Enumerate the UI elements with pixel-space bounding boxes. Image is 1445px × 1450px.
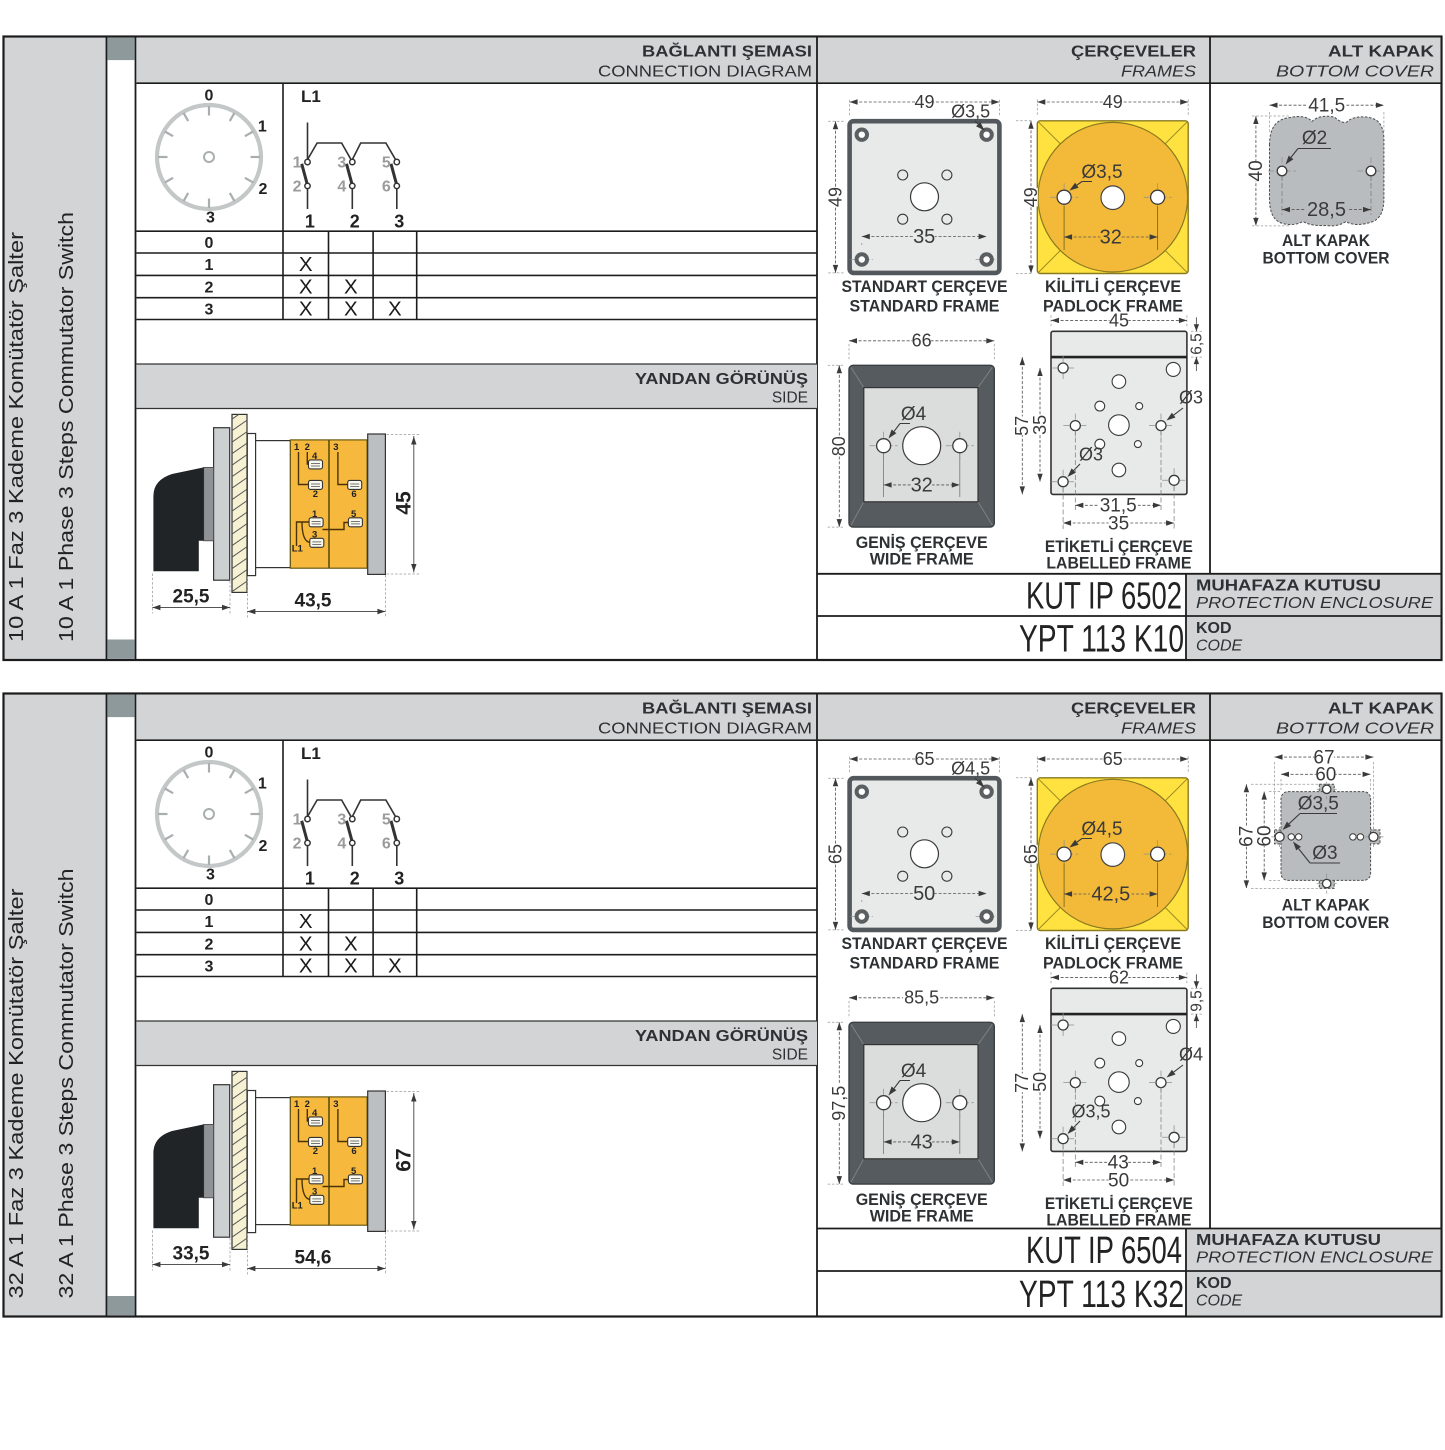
svg-text:5: 5 [351, 1166, 357, 1177]
svg-text:28,5: 28,5 [1307, 199, 1346, 221]
svg-text:2: 2 [293, 836, 302, 853]
svg-text:4: 4 [337, 836, 346, 853]
svg-text:CODE: CODE [1196, 1293, 1243, 1310]
svg-text:LABELLED FRAME: LABELLED FRAME [1046, 553, 1191, 572]
svg-text:2: 2 [259, 181, 268, 198]
svg-text:Ø3,5: Ø3,5 [1071, 1102, 1110, 1122]
svg-text:49: 49 [914, 92, 934, 112]
svg-text:60: 60 [1315, 765, 1336, 786]
svg-text:1: 1 [293, 812, 302, 829]
svg-text:X: X [388, 955, 402, 978]
svg-text:2: 2 [350, 212, 360, 232]
svg-text:BOTTOM COVER: BOTTOM COVER [1276, 64, 1434, 81]
svg-text:BAĞLANTI ŞEMASI: BAĞLANTI ŞEMASI [642, 43, 812, 61]
svg-text:32 A 1 Phase 3 Steps Commutato: 32 A 1 Phase 3 Steps Commutator Switch [55, 869, 78, 1299]
svg-text:32: 32 [1100, 227, 1122, 249]
svg-text:SIDE: SIDE [772, 1046, 808, 1063]
svg-text:1: 1 [293, 155, 302, 172]
svg-text:3: 3 [337, 155, 346, 172]
svg-text:Ø4: Ø4 [901, 404, 927, 425]
svg-text:CONNECTION DIAGRAM: CONNECTION DIAGRAM [598, 64, 812, 81]
svg-text:Ø4: Ø4 [901, 1061, 927, 1082]
svg-text:1: 1 [294, 442, 300, 453]
svg-text:ALT KAPAK: ALT KAPAK [1328, 701, 1435, 718]
svg-text:85,5: 85,5 [904, 988, 939, 1008]
svg-text:43: 43 [911, 1132, 933, 1154]
svg-text:MUHAFAZA KUTUSU: MUHAFAZA KUTUSU [1196, 1232, 1381, 1249]
svg-text:40: 40 [1246, 160, 1267, 181]
svg-text:KOD: KOD [1196, 620, 1232, 637]
svg-text:0: 0 [205, 892, 214, 909]
svg-text:2: 2 [313, 489, 318, 500]
svg-text:L1: L1 [292, 544, 304, 555]
svg-text:KUT IP 6502: KUT IP 6502 [1026, 575, 1182, 617]
svg-text:3: 3 [333, 442, 338, 453]
svg-text:35: 35 [1108, 513, 1129, 534]
svg-text:62: 62 [1109, 967, 1129, 987]
svg-text:49: 49 [825, 187, 845, 207]
svg-text:60: 60 [1255, 825, 1276, 846]
svg-text:Ø4,5: Ø4,5 [951, 759, 990, 779]
svg-text:CONNECTION DIAGRAM: CONNECTION DIAGRAM [598, 721, 812, 738]
svg-text:4: 4 [337, 179, 346, 196]
svg-text:BOTTOM COVER: BOTTOM COVER [1276, 721, 1434, 738]
svg-text:9,5: 9,5 [1189, 990, 1206, 1012]
svg-text:25,5: 25,5 [173, 587, 210, 608]
svg-text:2: 2 [293, 179, 302, 196]
svg-text:5: 5 [382, 155, 391, 172]
svg-text:0: 0 [205, 87, 214, 104]
svg-text:54,6: 54,6 [295, 1248, 332, 1269]
svg-text:10 A 1 Phase 3 Steps Commutato: 10 A 1 Phase 3 Steps Commutator Switch [55, 212, 78, 642]
svg-text:YPT 113 K32: YPT 113 K32 [1019, 1274, 1184, 1316]
svg-text:FRAMES: FRAMES [1121, 721, 1197, 738]
svg-text:1: 1 [258, 119, 267, 136]
svg-text:X: X [344, 298, 358, 321]
svg-text:X: X [344, 276, 358, 299]
svg-text:X: X [299, 298, 313, 321]
svg-text:1: 1 [294, 1099, 300, 1110]
svg-text:KOD: KOD [1196, 1275, 1232, 1292]
svg-text:FRAMES: FRAMES [1121, 64, 1197, 81]
svg-text:Ø3: Ø3 [1179, 388, 1203, 408]
svg-text:ÇERÇEVELER: ÇERÇEVELER [1071, 44, 1196, 61]
svg-text:3: 3 [394, 212, 404, 232]
svg-text:1: 1 [258, 776, 267, 793]
svg-text:Ø3: Ø3 [1079, 445, 1103, 465]
svg-text:2: 2 [259, 838, 268, 855]
svg-text:Ø3,5: Ø3,5 [1298, 794, 1339, 815]
svg-text:X: X [299, 910, 313, 933]
svg-text:ALT KAPAK: ALT KAPAK [1282, 231, 1371, 250]
svg-text:ALT KAPAK: ALT KAPAK [1328, 44, 1435, 61]
svg-text:Ø3,5: Ø3,5 [1081, 162, 1122, 183]
svg-text:3: 3 [205, 301, 214, 318]
svg-text:4: 4 [312, 451, 318, 462]
svg-text:ALT KAPAK: ALT KAPAK [1282, 896, 1371, 915]
svg-text:L1: L1 [301, 87, 321, 106]
svg-text:2: 2 [205, 279, 214, 296]
svg-text:5: 5 [351, 509, 357, 520]
svg-text:Ø2: Ø2 [1302, 128, 1327, 149]
svg-text:5: 5 [382, 812, 391, 829]
svg-text:0: 0 [205, 235, 214, 252]
svg-text:X: X [344, 933, 358, 956]
svg-text:3: 3 [312, 1187, 317, 1198]
svg-text:45: 45 [1109, 310, 1129, 330]
svg-text:L1: L1 [301, 744, 321, 763]
svg-text:LABELLED FRAME: LABELLED FRAME [1046, 1210, 1191, 1229]
svg-text:35: 35 [913, 226, 935, 248]
svg-text:2: 2 [350, 869, 360, 889]
svg-text:50: 50 [913, 883, 935, 905]
svg-text:SIDE: SIDE [772, 389, 808, 406]
svg-text:ÇERÇEVELER: ÇERÇEVELER [1071, 701, 1196, 718]
svg-text:41,5: 41,5 [1308, 96, 1345, 117]
svg-text:3: 3 [206, 867, 215, 884]
svg-text:42,5: 42,5 [1091, 884, 1130, 906]
svg-text:2: 2 [305, 1099, 310, 1110]
svg-text:L1: L1 [292, 1201, 304, 1212]
svg-text:X: X [299, 955, 313, 978]
svg-text:MUHAFAZA KUTUSU: MUHAFAZA KUTUSU [1196, 577, 1381, 594]
svg-text:BOTTOM COVER: BOTTOM COVER [1263, 248, 1390, 267]
svg-text:YPT 113 K10: YPT 113 K10 [1019, 619, 1184, 661]
svg-text:45: 45 [393, 491, 416, 515]
svg-text:YANDAN GÖRÜNÜŞ: YANDAN GÖRÜNÜŞ [635, 1028, 808, 1045]
svg-text:STANDART ÇERÇEVE: STANDART ÇERÇEVE [842, 934, 1008, 953]
svg-text:X: X [299, 276, 313, 299]
svg-text:6: 6 [382, 836, 391, 853]
svg-text:X: X [299, 253, 313, 276]
svg-text:1: 1 [205, 257, 214, 274]
svg-text:65: 65 [1103, 749, 1123, 769]
svg-text:97,5: 97,5 [829, 1086, 849, 1121]
svg-text:WIDE FRAME: WIDE FRAME [870, 550, 974, 569]
svg-text:6: 6 [351, 1146, 356, 1157]
svg-text:Ø3,5: Ø3,5 [951, 102, 990, 122]
svg-text:1: 1 [312, 509, 318, 520]
svg-text:3: 3 [205, 958, 214, 975]
svg-text:X: X [388, 298, 402, 321]
svg-text:CODE: CODE [1196, 638, 1243, 655]
svg-text:49: 49 [1103, 92, 1123, 112]
svg-text:6: 6 [351, 489, 356, 500]
svg-text:32 A 1 Faz 3 Kademe Komütatör: 32 A 1 Faz 3 Kademe Komütatör Şalter [5, 888, 28, 1298]
svg-text:Ø4,5: Ø4,5 [1081, 819, 1122, 840]
svg-text:3: 3 [333, 1099, 338, 1110]
svg-text:PROTECTION ENCLOSURE: PROTECTION ENCLOSURE [1196, 1250, 1433, 1267]
svg-text:3: 3 [312, 530, 317, 541]
svg-text:33,5: 33,5 [173, 1244, 210, 1265]
svg-text:65: 65 [1021, 844, 1041, 864]
svg-text:1: 1 [305, 212, 315, 232]
svg-text:49: 49 [1021, 187, 1041, 207]
svg-text:43,5: 43,5 [295, 591, 332, 612]
svg-text:50: 50 [1030, 1072, 1050, 1092]
svg-text:Ø3: Ø3 [1312, 843, 1337, 864]
svg-text:STANDARD FRAME: STANDARD FRAME [850, 953, 1000, 972]
svg-text:STANDARD FRAME: STANDARD FRAME [850, 296, 1000, 315]
svg-text:YANDAN GÖRÜNÜŞ: YANDAN GÖRÜNÜŞ [635, 371, 808, 388]
svg-text:X: X [299, 933, 313, 956]
svg-text:KUT IP 6504: KUT IP 6504 [1026, 1230, 1182, 1272]
svg-text:10 A 1 Faz 3 Kademe Komütatör: 10 A 1 Faz 3 Kademe Komütatör Şalter [5, 232, 28, 642]
svg-text:67: 67 [393, 1148, 416, 1171]
svg-text:KİLİTLİ ÇERÇEVE: KİLİTLİ ÇERÇEVE [1045, 277, 1181, 296]
svg-text:3: 3 [394, 869, 404, 889]
svg-text:STANDART ÇERÇEVE: STANDART ÇERÇEVE [842, 277, 1008, 296]
svg-text:WIDE FRAME: WIDE FRAME [870, 1207, 974, 1226]
svg-text:KİLİTLİ ÇERÇEVE: KİLİTLİ ÇERÇEVE [1045, 934, 1181, 953]
svg-text:1: 1 [205, 914, 214, 931]
svg-text:6: 6 [382, 179, 391, 196]
svg-text:2: 2 [313, 1146, 318, 1157]
svg-text:65: 65 [914, 749, 934, 769]
svg-text:2: 2 [305, 442, 310, 453]
svg-text:4: 4 [312, 1108, 318, 1119]
svg-text:Ø4: Ø4 [1179, 1045, 1203, 1065]
svg-text:1: 1 [305, 869, 315, 889]
svg-text:BOTTOM COVER: BOTTOM COVER [1262, 913, 1389, 932]
svg-text:2: 2 [205, 936, 214, 953]
svg-text:35: 35 [1030, 415, 1050, 435]
svg-text:50: 50 [1108, 1170, 1129, 1191]
svg-text:X: X [344, 955, 358, 978]
svg-text:65: 65 [825, 844, 845, 864]
svg-text:1: 1 [312, 1166, 318, 1177]
svg-text:6,5: 6,5 [1189, 333, 1206, 355]
svg-text:BAĞLANTI ŞEMASI: BAĞLANTI ŞEMASI [642, 700, 812, 718]
svg-text:3: 3 [337, 812, 346, 829]
svg-text:3: 3 [206, 210, 215, 227]
svg-text:32: 32 [911, 475, 933, 497]
svg-text:66: 66 [912, 331, 932, 351]
svg-text:0: 0 [205, 744, 214, 761]
svg-text:80: 80 [829, 436, 849, 456]
svg-text:PROTECTION ENCLOSURE: PROTECTION ENCLOSURE [1196, 595, 1433, 612]
